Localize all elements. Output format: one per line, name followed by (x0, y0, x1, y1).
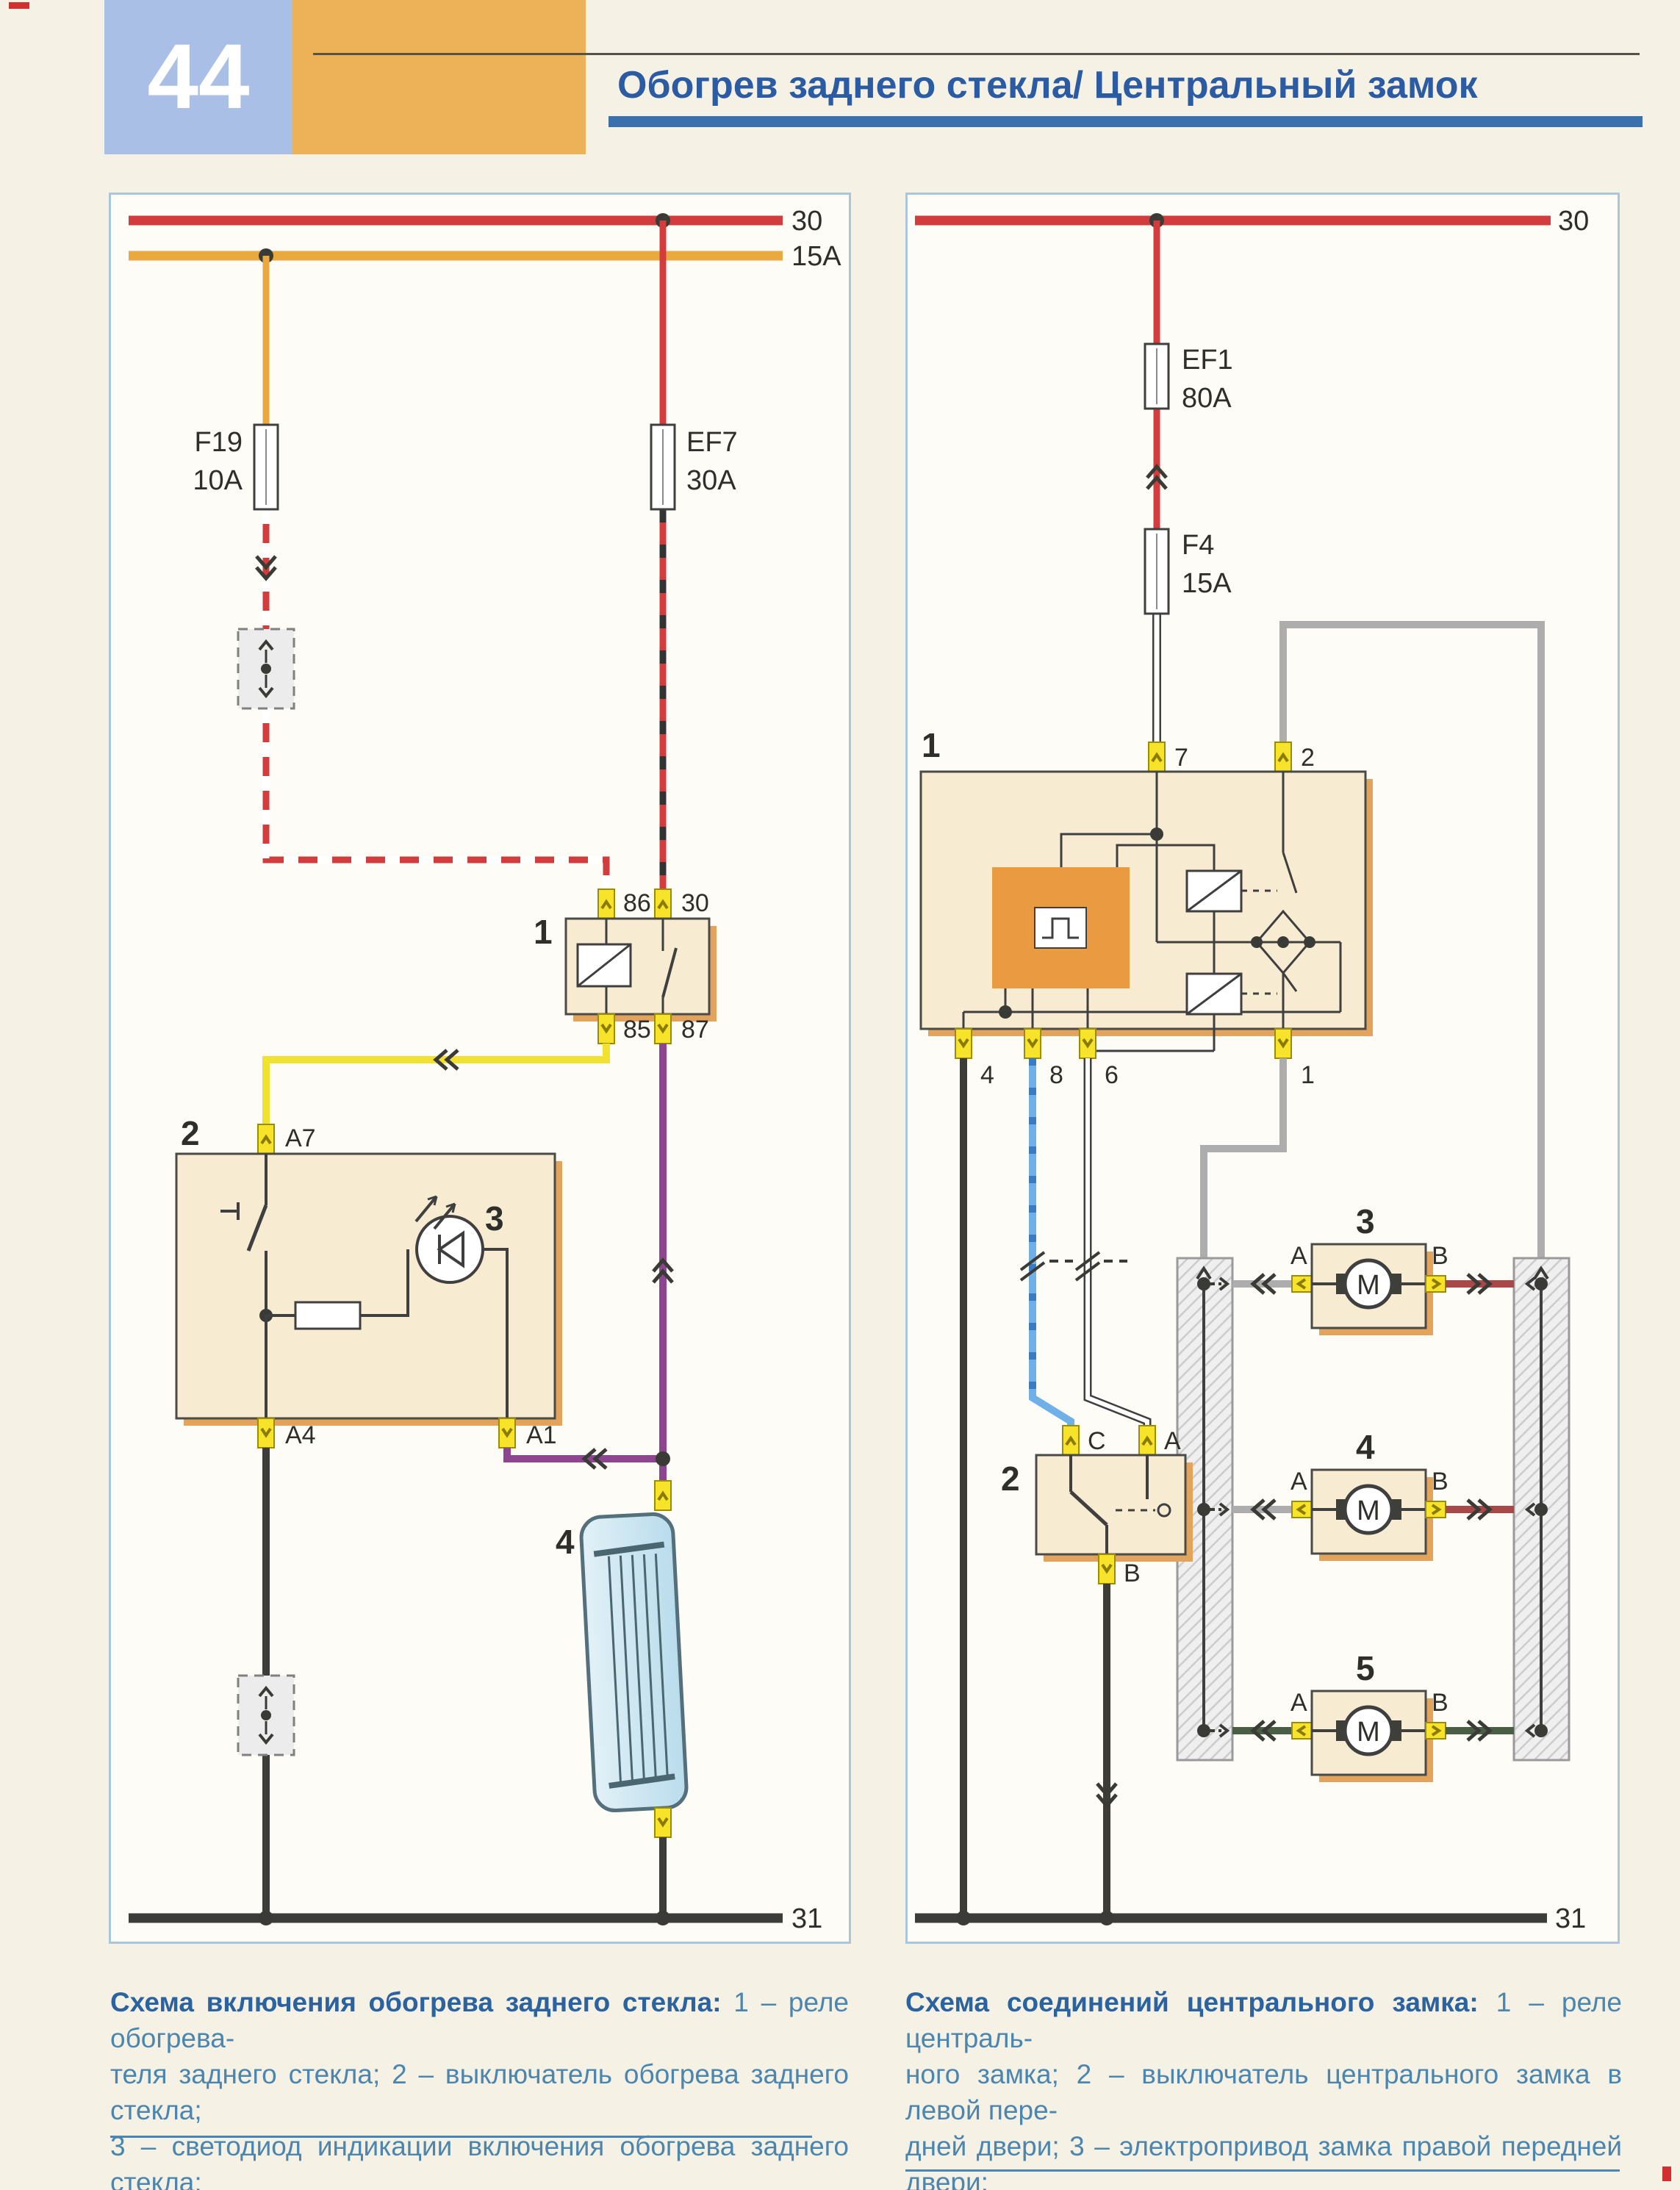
bus-30-label: 30 (1558, 206, 1589, 237)
led-indicator-icon (417, 1216, 483, 1282)
caption-line: дней двери; 3 – электропривод замка прав… (905, 2128, 1622, 2190)
pin-b-label: B (1124, 1559, 1141, 1587)
caption-bold: Схема включения обогрева заднего стекла: (110, 1987, 722, 2017)
header-orange-block (292, 0, 586, 154)
pin-b-label: B (1432, 1242, 1449, 1270)
caption-bold: Схема соединений центрального замка: (905, 1987, 1479, 2017)
actuator-number: 5 (1356, 1649, 1375, 1687)
caption-line: ного замка; 2 – выключатель центрального… (905, 2056, 1622, 2128)
defogger-switch: A7 2 3 A4 A1 (176, 1114, 562, 1449)
pin-1-label: 1 (1301, 1061, 1315, 1089)
inline-connector-icon (238, 629, 294, 708)
pin-87-label: 87 (681, 1016, 709, 1044)
header-rule (313, 53, 1640, 55)
led-number: 3 (485, 1199, 504, 1238)
switch-number: 2 (181, 1114, 200, 1152)
central-lock-relay: 7 2 1 (921, 726, 1373, 1089)
relay-number: 1 (922, 726, 941, 764)
caption-line: Схема соединений центрального замка: 1 –… (905, 1984, 1622, 2056)
pin-a-label: A (1290, 1689, 1307, 1717)
pin-a-label: A (1164, 1427, 1181, 1455)
fuse-ef7-rating: 30A (686, 465, 736, 496)
right-caption: Схема соединений центрального замка: 1 –… (905, 1984, 1622, 2190)
left-caption: Схема включения обогрева заднего стекла:… (110, 1984, 849, 2190)
caption-rule (110, 2136, 812, 2138)
pin-a-label: A (1290, 1242, 1307, 1270)
manual-page: 44 Обогрев заднего стекла/ Центральный з… (0, 0, 1680, 2190)
pin-a-label: A (1290, 1468, 1307, 1496)
fuse-ef7-name: EF7 (686, 427, 738, 458)
resistor-icon (295, 1302, 360, 1329)
pin-2-label: 2 (1301, 744, 1315, 772)
relay-number: 1 (534, 913, 553, 951)
pin-30-label: 30 (681, 889, 709, 917)
caption-line: теля заднего стекла; 2 – выключатель обо… (110, 2056, 849, 2128)
fuse-f19-rating: 10A (193, 465, 243, 496)
page-number: 44 (104, 0, 292, 154)
caption-line: Схема включения обогрева заднего стекла:… (110, 1984, 849, 2056)
panel-frame (907, 194, 1619, 1943)
actuator-number: 4 (1356, 1428, 1375, 1466)
fuse-ef1-name: EF1 (1182, 345, 1233, 376)
element-number: 4 (556, 1523, 575, 1561)
pin-86-label: 86 (623, 889, 651, 917)
title-underline (609, 116, 1643, 127)
pin-b-label: B (1432, 1689, 1449, 1717)
pin-a4-label: A4 (285, 1421, 316, 1449)
motor-m-label: M (1357, 1496, 1380, 1526)
scan-mark (9, 2, 29, 9)
fuse-f19-name: F19 (195, 427, 243, 458)
central-locking-diagram: 30 EF1 80A F4 15A 7 2 (905, 193, 1620, 1944)
pin-6-label: 6 (1105, 1061, 1119, 1089)
pin-b-label: B (1432, 1468, 1449, 1496)
bus-31-label: 31 (1555, 1903, 1586, 1934)
fuse-f4-name: F4 (1182, 530, 1214, 561)
pin-a1-label: A1 (526, 1421, 557, 1449)
pin-7-label: 7 (1174, 744, 1188, 772)
motor-m-label: M (1357, 1270, 1380, 1301)
bus-15a-label: 15A (791, 241, 841, 272)
pin-8-label: 8 (1049, 1061, 1063, 1089)
scan-mark (1662, 2166, 1671, 2181)
pin-c-label: C (1088, 1427, 1106, 1455)
pin-4-label: 4 (980, 1061, 994, 1089)
caption-rule (905, 2169, 1620, 2172)
pin-a7-label: A7 (285, 1124, 316, 1152)
motor-m-label: M (1357, 1717, 1380, 1748)
inline-connector-icon (238, 1676, 294, 1755)
bus-30-label: 30 (791, 206, 822, 237)
switch-number: 2 (1001, 1460, 1020, 1498)
rear-window-defogger-diagram: 30 15A F19 10A (109, 193, 851, 1944)
actuator-number: 3 (1356, 1202, 1375, 1241)
page-title: Обогрев заднего стекла/ Центральный замо… (617, 63, 1477, 107)
pin-85-label: 85 (623, 1016, 651, 1044)
fuse-ef1-rating: 80A (1182, 383, 1232, 414)
bus-31-label: 31 (791, 1903, 822, 1934)
fuse-f4-rating: 15A (1182, 568, 1232, 599)
